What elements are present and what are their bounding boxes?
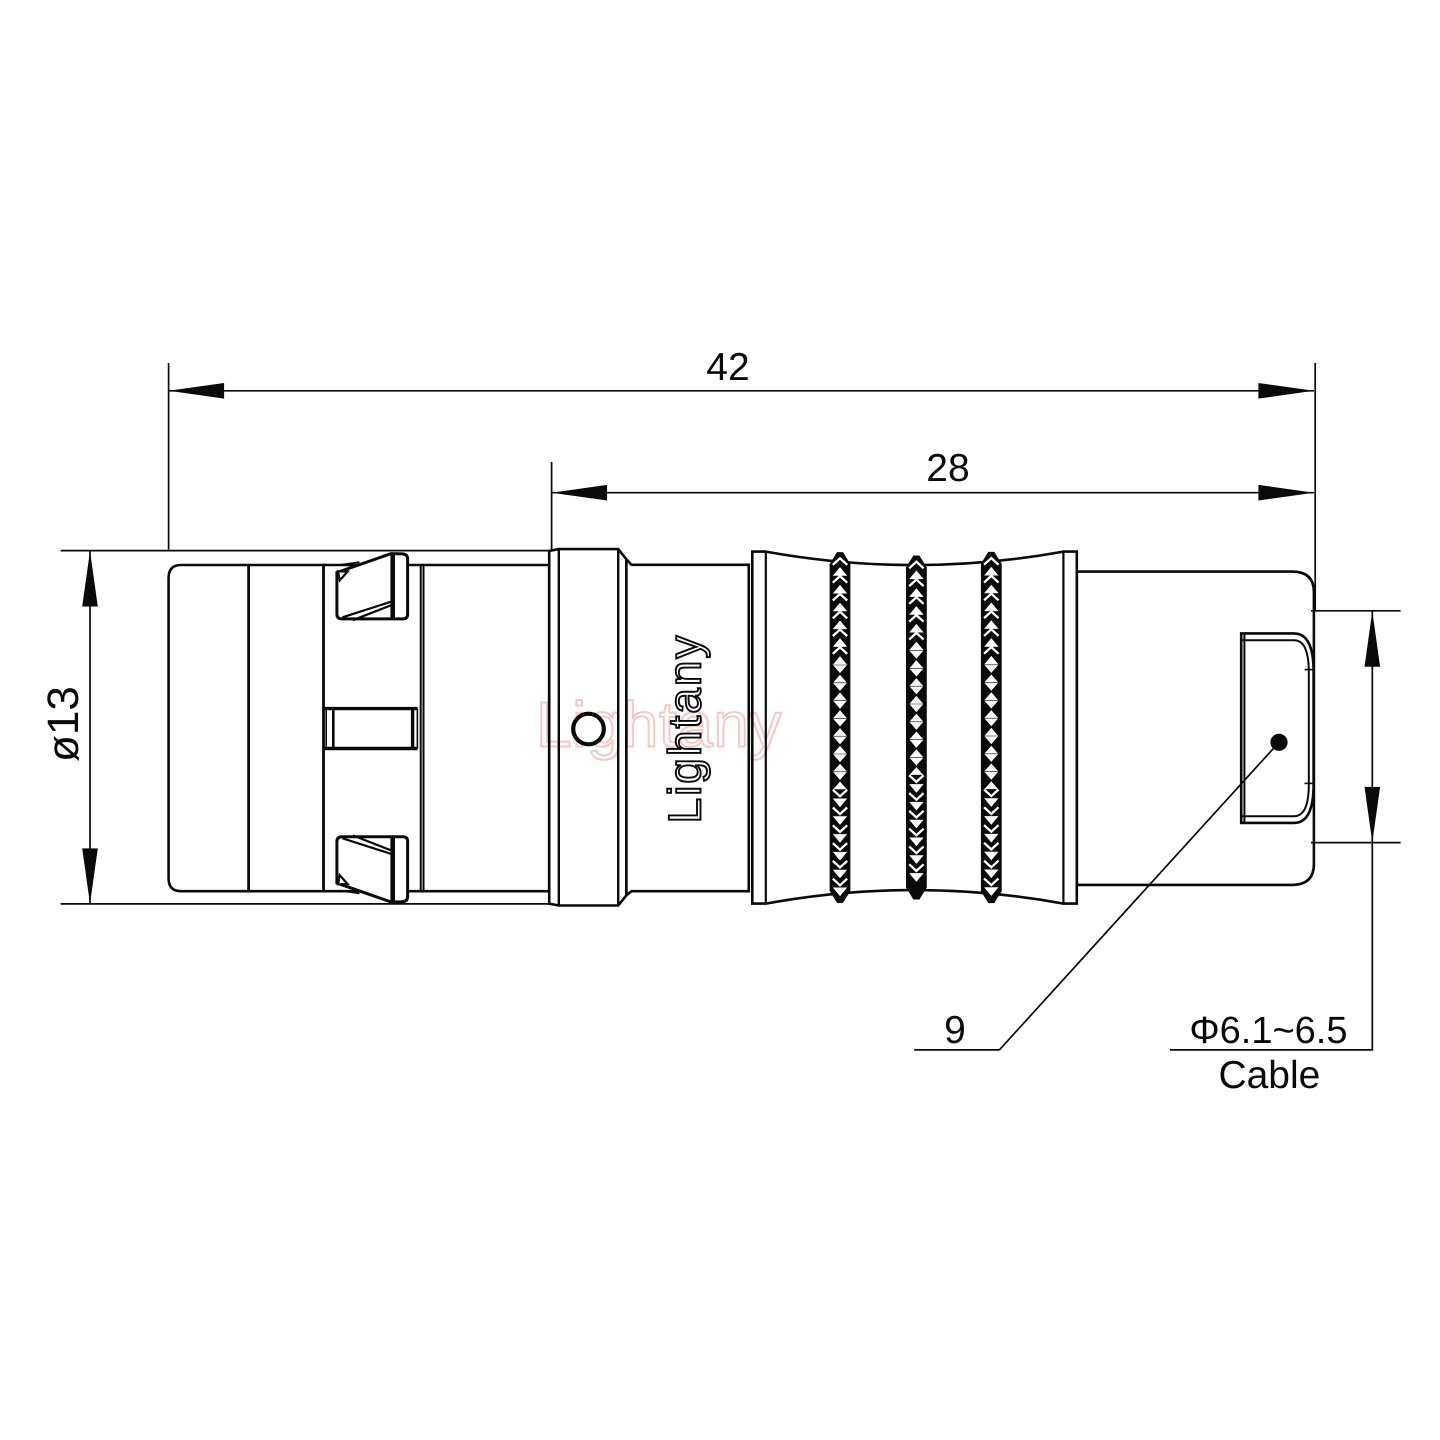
svg-text:42: 42	[706, 346, 749, 389]
svg-text:9: 9	[944, 1009, 966, 1052]
svg-text:28: 28	[926, 447, 969, 490]
svg-text:Φ6.1~6.5: Φ6.1~6.5	[1189, 1010, 1347, 1052]
svg-text:Cable: Cable	[1218, 1054, 1320, 1097]
svg-text:Lightany: Lightany	[659, 634, 711, 824]
svg-text:ø13: ø13	[39, 686, 88, 762]
